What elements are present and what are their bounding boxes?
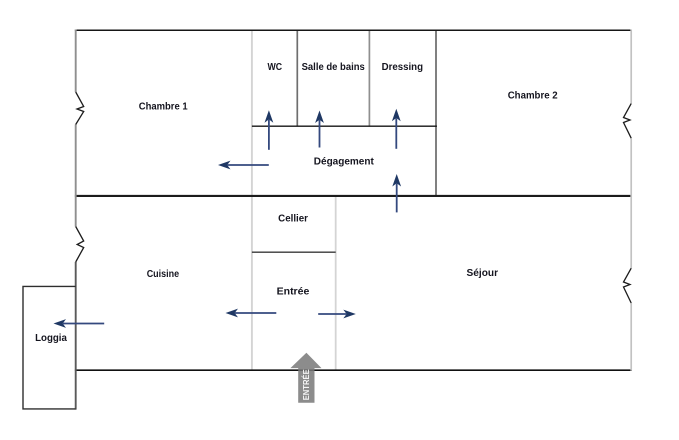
svg-text:Chambre 2: Chambre 2 (508, 90, 558, 101)
svg-text:Dégagement: Dégagement (314, 157, 375, 168)
svg-text:Loggia: Loggia (35, 333, 67, 344)
svg-text:WC: WC (268, 62, 283, 73)
svg-text:ENTRÉE: ENTRÉE (302, 369, 311, 401)
svg-text:Entrée: Entrée (277, 287, 310, 298)
svg-text:Chambre 1: Chambre 1 (139, 102, 188, 113)
svg-text:Salle de bains: Salle de bains (302, 62, 365, 73)
svg-text:Dressing: Dressing (382, 62, 423, 73)
svg-text:Séjour: Séjour (467, 268, 499, 279)
svg-text:Cellier: Cellier (278, 214, 308, 225)
svg-text:Cuisine: Cuisine (147, 269, 180, 280)
